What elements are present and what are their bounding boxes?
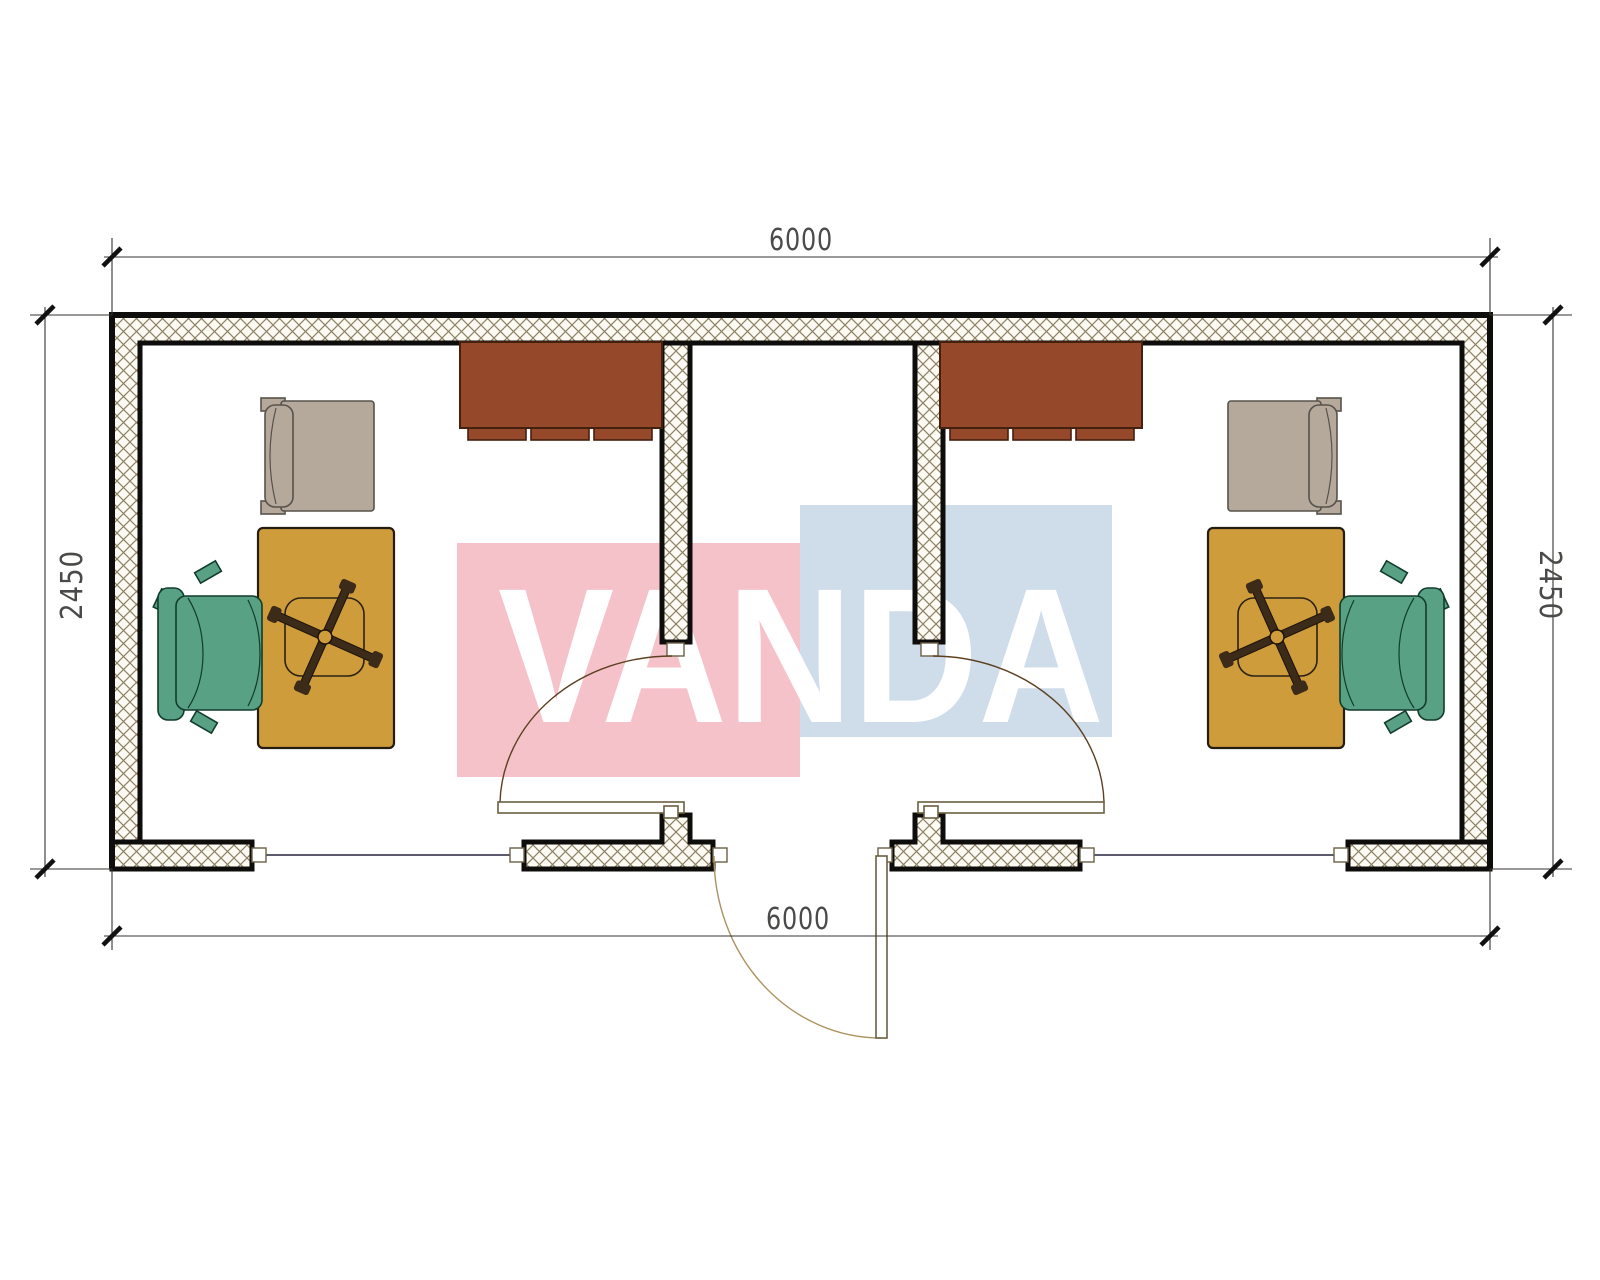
armchair: [261, 398, 374, 514]
chair-armrest: [1385, 711, 1412, 733]
office-chair: [1340, 561, 1449, 733]
dimension-left: 2450: [30, 306, 112, 878]
door-leaf-room2: [918, 802, 1104, 813]
dimension-bottom: 6000: [103, 869, 1499, 950]
chair-armrest: [195, 561, 222, 583]
dimension-right: 2450: [1490, 306, 1572, 878]
watermark-text: VANDA: [498, 548, 1104, 763]
dimension-label-right: 2450: [1532, 550, 1567, 620]
cabinet-foot: [531, 428, 589, 440]
cabinet-body: [940, 342, 1142, 428]
dimension-top: 6000: [103, 223, 1499, 315]
entrance-swing-arc: [714, 856, 881, 1038]
dimension-label-top: 6000: [769, 223, 833, 258]
floor-plan-svg: VANDA: [0, 0, 1600, 1280]
door-leaf-room1: [498, 802, 684, 813]
cabinet-foot: [468, 428, 526, 440]
cabinet-foot: [1013, 428, 1071, 440]
door-jamb: [921, 643, 938, 656]
chair-armrest: [1381, 561, 1408, 583]
cabinet-foot: [594, 428, 652, 440]
watermark: VANDA: [457, 505, 1112, 777]
cabinet-foot: [1076, 428, 1134, 440]
window-jamb: [1334, 848, 1348, 862]
windows: [252, 848, 1348, 862]
cabinet-foot: [950, 428, 1008, 440]
wardrobe-cabinet: [940, 342, 1142, 440]
wall-bottom-right-segment: [1348, 842, 1490, 869]
window-jamb: [252, 848, 266, 862]
entrance-door-leaf: [876, 856, 887, 1038]
chair-armrest: [191, 711, 218, 733]
interior-wall-2: [915, 343, 943, 642]
office-chair: [153, 561, 262, 733]
door-hinge-block-room1: [664, 806, 678, 818]
armchair-back: [265, 405, 293, 507]
dimension-label-left: 2450: [55, 550, 90, 620]
wall-right: [1462, 315, 1490, 869]
door-hinge-block-room2: [924, 806, 938, 818]
window-jamb: [1080, 848, 1094, 862]
armchair: [1228, 398, 1341, 514]
armchair-seat: [281, 401, 374, 511]
armchair-back: [1309, 405, 1337, 507]
wardrobe-cabinet: [460, 342, 662, 440]
door-jamb: [667, 643, 684, 656]
wall-left: [112, 315, 140, 869]
chair-seat: [1340, 596, 1426, 710]
interior-wall-1: [662, 343, 690, 642]
armchair-seat: [1228, 401, 1321, 511]
wall-top: [112, 315, 1490, 343]
wall-bottom-left-segment: [112, 842, 252, 869]
window-jamb: [510, 848, 524, 862]
cabinet-body: [460, 342, 662, 428]
chair-seat: [176, 596, 262, 710]
dimension-label-bottom: 6000: [766, 902, 830, 937]
floor-plan-canvas: VANDA: [0, 0, 1600, 1280]
entrance-jamb-left: [713, 848, 727, 862]
